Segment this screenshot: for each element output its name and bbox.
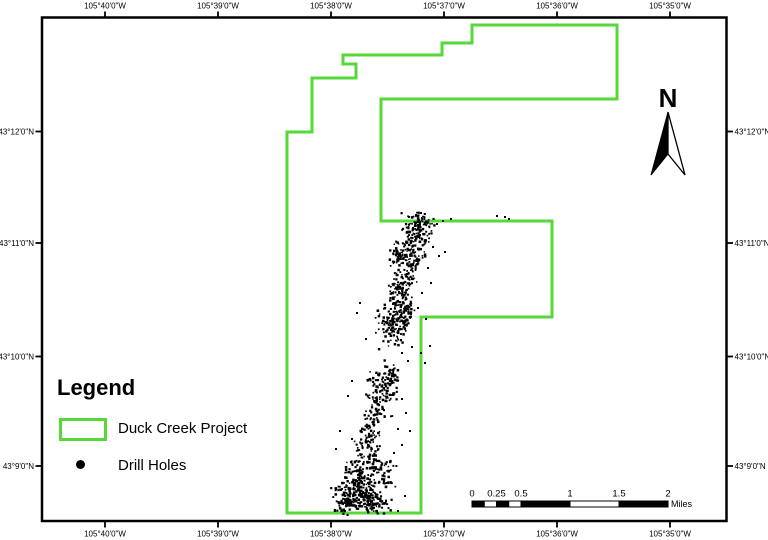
drill-hole-dot [358, 494, 360, 496]
drill-hole-dot [415, 267, 417, 269]
drill-hole-dot [351, 438, 353, 440]
drill-hole-dot [361, 439, 362, 440]
drill-hole-dot [360, 501, 362, 503]
drill-hole-dot [404, 254, 406, 256]
drill-hole-dot [384, 379, 386, 381]
drill-hole-dot [342, 503, 344, 505]
drill-hole-dot [415, 214, 417, 216]
drill-hole-dot [364, 477, 366, 479]
drill-hole-dot [391, 318, 393, 320]
drill-hole-dot [372, 381, 374, 383]
longitude-label-top: 105°36'0"W [536, 2, 578, 11]
drill-hole-dot [504, 216, 506, 218]
drill-hole-dot [389, 461, 391, 463]
drill-hole-dot [381, 478, 383, 480]
drill-hole-dot [417, 224, 419, 226]
drill-hole-dot [406, 270, 408, 272]
drill-hole-dot [433, 218, 435, 220]
drill-hole-dot [399, 328, 401, 330]
drill-hole-dot [392, 298, 395, 301]
scale-tick-label: 0.25 [487, 489, 506, 500]
drill-hole-dot [401, 444, 403, 446]
drill-hole-dot [398, 291, 400, 293]
drill-hole-dot [387, 317, 389, 319]
drill-hole-dot [368, 397, 370, 399]
drill-hole-dot [356, 450, 358, 452]
drill-hole-dot [390, 324, 392, 326]
drill-hole-dot [395, 286, 398, 289]
longitude-label-top: 105°38'0"W [310, 2, 352, 11]
drill-hole-dot [376, 400, 378, 402]
drill-hole-dot [372, 432, 374, 434]
drill-hole-dot [378, 460, 380, 462]
drill-hole-dot [371, 485, 372, 486]
drill-hole-dot [369, 486, 371, 488]
drill-hole-dot [386, 503, 388, 505]
drill-hole-dot [351, 463, 353, 465]
drill-hole-dot [395, 323, 398, 326]
drill-hole-dot [365, 418, 367, 420]
drill-hole-dot [386, 482, 388, 484]
drill-hole-dot [388, 345, 389, 346]
drill-hole-dot [417, 236, 419, 238]
drill-hole-dot [356, 490, 358, 492]
drill-hole-dot [367, 474, 369, 476]
drill-hole-dot [399, 254, 402, 257]
latitude-label-left: 43°12'0"N [0, 127, 34, 136]
longitude-label-bottom: 105°37'0"W [423, 530, 465, 539]
drill-hole-dot [418, 212, 420, 214]
drill-hole-dot [354, 471, 356, 473]
drill-hole-dot [365, 338, 367, 340]
drill-hole-dot [394, 296, 395, 297]
drill-hole-dot [406, 276, 408, 278]
drill-hole-dot [424, 213, 426, 215]
drill-hole-dot [377, 512, 379, 514]
drill-hole-dot [365, 435, 367, 437]
drill-hole-dot [405, 412, 407, 414]
drill-hole-dot [396, 252, 398, 254]
drill-hole-dot [428, 219, 430, 221]
drill-hole-dot [383, 388, 385, 390]
drill-hole-dot [335, 493, 338, 496]
drill-hole-dot [393, 452, 395, 454]
drill-hole-dot [360, 443, 362, 445]
drill-hole-dot [380, 413, 382, 415]
drill-hole-dot [367, 447, 369, 449]
drill-hole-dot [422, 233, 425, 236]
drill-hole-dot [393, 311, 395, 313]
drill-hole-dot [384, 475, 386, 477]
drill-hole-dot [378, 373, 380, 375]
drill-hole-dot [406, 289, 408, 291]
drill-hole-dot [343, 492, 345, 494]
drill-hole-dot [383, 395, 385, 397]
drill-hole-dot [369, 454, 371, 456]
drill-hole-dot [395, 340, 397, 342]
drill-hole-dot [372, 385, 374, 387]
drill-hole-dot [402, 287, 404, 289]
drill-hole-dot [394, 307, 396, 309]
drill-hole-dot [408, 288, 410, 290]
drill-hole-dot [422, 255, 424, 257]
drill-hole-dot [412, 275, 414, 277]
drill-hole-dot [368, 492, 370, 494]
drill-hole-dot [375, 510, 378, 513]
drill-hole-dot [370, 481, 372, 483]
drill-hole-dot [397, 300, 400, 303]
drill-hole-dot [368, 436, 371, 439]
drill-hole-dot [389, 258, 392, 261]
drill-hole-dot [366, 437, 368, 439]
drill-hole-dot [438, 255, 440, 257]
drill-hole-dot [374, 437, 376, 439]
drill-hole-dot [355, 466, 357, 468]
drill-hole-dot [369, 496, 371, 498]
drill-hole-dot [390, 509, 392, 511]
drill-hole-dot [409, 279, 411, 281]
drill-hole-dot [406, 260, 408, 262]
drill-hole-dot [393, 278, 395, 280]
drill-hole-dot [357, 455, 359, 457]
drill-hole-dot [408, 244, 410, 246]
drill-hole-dot [427, 221, 429, 223]
drill-hole-dot [396, 258, 398, 260]
drill-hole-dot [364, 499, 366, 501]
drill-hole-dot [399, 258, 402, 261]
drill-hole-dot [374, 479, 376, 481]
drill-hole-dot [388, 383, 390, 385]
drill-hole-dot [392, 315, 394, 317]
drill-hole-dot [407, 282, 410, 285]
drill-hole-dot [389, 249, 391, 251]
drill-hole-dot [374, 469, 375, 470]
drill-hole-dot [369, 507, 371, 509]
drill-hole-dot [415, 228, 417, 230]
drill-hole-dot [395, 486, 397, 488]
drill-hole-dot [399, 326, 401, 328]
drill-hole-dot [369, 378, 372, 381]
drill-hole-dot [404, 243, 406, 245]
drill-hole-dot [417, 248, 420, 251]
drill-hole-dot [414, 244, 416, 246]
drill-hole-dot [369, 394, 371, 396]
drill-hole-dot [401, 212, 403, 214]
drill-hole-dot [389, 394, 391, 396]
drill-hole-dot [384, 389, 386, 391]
drill-hole-dot [400, 249, 402, 251]
drill-hole-dot [336, 500, 338, 502]
drill-hole-dot [378, 328, 380, 330]
drill-hole-dot [346, 472, 348, 474]
drill-hole-dot [413, 278, 415, 280]
drill-hole-dot [433, 224, 435, 226]
drill-hole-dot [392, 284, 394, 286]
drill-hole-dot [417, 226, 419, 228]
drill-hole-dot [400, 305, 402, 307]
drill-hole-dot [389, 378, 392, 381]
drill-hole-dot [372, 396, 374, 398]
drill-hole-dot [397, 339, 399, 341]
drill-hole-dot [388, 373, 391, 376]
longitude-label-top: 105°39'0"W [197, 2, 239, 11]
drill-hole-dot [404, 495, 406, 497]
drill-hole-dot [343, 482, 345, 484]
drill-hole-dot [383, 324, 385, 326]
drill-hole-dot [410, 308, 413, 311]
drill-hole-dot [332, 496, 334, 498]
drill-hole-dot [407, 313, 409, 315]
drill-hole-dot [381, 507, 383, 509]
drill-hole-dot [377, 450, 379, 452]
drill-hole-dot [408, 228, 410, 230]
drill-hole-dot [371, 434, 373, 436]
drill-hole-dot [375, 332, 377, 334]
drill-hole-dot [410, 242, 412, 244]
drill-hole-dot [401, 274, 403, 276]
drill-hole-dot [357, 508, 359, 510]
drill-hole-dot [405, 292, 407, 294]
drill-hole-dot [378, 315, 381, 318]
drill-hole-dot [388, 327, 390, 329]
drill-hole-dot [361, 496, 363, 498]
drill-hole-dot [418, 255, 420, 256]
drill-hole-dot [341, 500, 343, 502]
drill-hole-dot [352, 471, 354, 473]
drill-hole-dot [410, 270, 411, 271]
drill-hole-dot [372, 398, 374, 400]
drill-hole-dot [392, 371, 394, 373]
drill-hole-dot [402, 277, 404, 279]
drill-hole-dot [429, 345, 431, 347]
drill-hole-dot [368, 433, 370, 435]
drill-hole-dot [397, 269, 399, 271]
drill-hole-dot [407, 305, 409, 307]
drill-hole-dot [359, 475, 361, 477]
drill-hole-dot [399, 271, 401, 273]
drill-hole-dot [376, 413, 378, 415]
drill-hole-dot [411, 297, 413, 299]
scale-bar-unit-label: Miles [671, 499, 692, 509]
drill-hole-dot [408, 216, 410, 218]
drill-hole-dot [404, 292, 405, 293]
drill-hole-dot [388, 476, 390, 478]
drill-hole-dot [378, 472, 380, 474]
drill-hole-dot [374, 414, 376, 416]
drill-hole-dot [374, 401, 376, 403]
drill-hole-dot [390, 265, 392, 267]
drill-hole-dot [409, 231, 412, 234]
drill-hole-dot [402, 228, 404, 230]
drill-hole-dot [369, 410, 371, 412]
drill-hole-dot [372, 377, 375, 380]
drill-hole-dot [424, 253, 427, 256]
drill-hole-dot [381, 385, 383, 387]
drill-hole-dot [421, 292, 423, 294]
drill-hole-dot [403, 303, 404, 304]
drill-hole-dot [394, 343, 397, 346]
drill-hole-dot [338, 501, 340, 503]
drill-hole-dot [364, 506, 366, 508]
drill-hole-dot [403, 308, 405, 310]
drill-hole-dot [389, 369, 391, 371]
drill-hole-dot [366, 442, 368, 444]
drill-hole-dot [368, 415, 370, 417]
drill-hole-dot [377, 386, 379, 388]
drill-hole-dot [366, 484, 368, 486]
drill-hole-dot [388, 333, 390, 335]
drill-hole-dot [387, 340, 390, 343]
drill-hole-dot [424, 362, 426, 364]
drill-hole-dot [370, 430, 373, 433]
drill-hole-dot [372, 497, 374, 499]
drill-hole-dot [395, 465, 397, 467]
drill-hole-dot [356, 497, 358, 499]
drill-hole-dot [399, 311, 401, 313]
drill-hole-dot [355, 506, 357, 508]
drill-hole-dot [376, 472, 378, 474]
drill-hole-dot [388, 470, 391, 473]
drill-hole-dot [397, 294, 399, 296]
drill-hole-dot [424, 251, 425, 252]
drill-hole-dot [397, 338, 399, 340]
drill-hole-dot [359, 461, 360, 462]
drill-hole-dot [390, 334, 393, 337]
drill-hole-dot [378, 482, 380, 484]
drill-hole-dot [396, 312, 398, 314]
drill-hole-dot [381, 464, 383, 466]
drill-hole-dot [395, 311, 396, 312]
drill-hole-dot [365, 495, 368, 498]
drill-hole-dot [379, 313, 380, 314]
drill-hole-dot [387, 378, 390, 381]
drill-hole-dot [409, 254, 412, 257]
drill-hole-dot [378, 404, 381, 407]
drill-hole-dot [436, 223, 438, 225]
drill-hole-dot [392, 303, 394, 305]
drill-hole-dot [390, 398, 392, 400]
drill-hole-dot [383, 331, 385, 333]
drill-hole-dot [418, 219, 420, 221]
drill-hole-dot [335, 489, 337, 491]
drill-hole-dot [383, 483, 385, 485]
drill-hole-dot [385, 486, 388, 489]
drill-hole-dot [374, 492, 376, 494]
drill-hole-dot [366, 461, 369, 464]
drill-hole-dot [360, 487, 362, 489]
drill-hole-dot [408, 226, 410, 228]
drill-hole-dot [401, 328, 403, 330]
drill-hole-dot [395, 291, 397, 293]
drill-hole-dot [402, 262, 404, 264]
drill-hole-dot [359, 302, 361, 304]
drill-hole-dot [416, 233, 418, 235]
drill-hole-dot [424, 240, 426, 242]
drill-hole-dot [397, 281, 399, 283]
drill-hole-dot [386, 329, 388, 331]
drill-hole-dot [508, 218, 510, 220]
drill-hole-dot [362, 499, 364, 501]
drill-hole-dot [393, 334, 395, 336]
drill-hole-dot [344, 495, 346, 497]
drill-hole-dot [401, 295, 403, 297]
drill-hole-dot [401, 252, 403, 254]
drill-hole-dot [359, 506, 361, 508]
drill-hole-dot [379, 390, 381, 392]
drill-hole-dot [362, 468, 364, 470]
legend-title: Legend [57, 375, 135, 401]
drill-hole-dot [419, 231, 421, 233]
drill-hole-dot [365, 410, 367, 412]
drill-hole-dot [359, 468, 361, 470]
drill-hole-dot [394, 304, 397, 307]
drill-hole-dot [415, 265, 417, 267]
drill-hole-dot [346, 462, 347, 463]
drill-hole-dot [396, 319, 399, 322]
drill-hole-dot [406, 256, 408, 258]
drill-hole-dot [386, 392, 388, 394]
drill-hole-dot [395, 302, 397, 304]
drill-hole-dot [393, 364, 395, 366]
drill-hole-dot [357, 487, 360, 490]
drill-hole-dot [369, 461, 371, 463]
drill-hole-dot [336, 510, 338, 512]
drill-hole-dot [353, 487, 355, 489]
drill-hole-dot [404, 327, 407, 330]
drill-hole-dot [411, 346, 413, 348]
drill-hole-dot [407, 360, 409, 362]
longitude-label-bottom: 105°36'0"W [536, 530, 578, 539]
drill-hole-dot [351, 504, 353, 506]
drill-hole-dot [406, 241, 408, 243]
legend-item-label-project: Duck Creek Project [118, 420, 247, 437]
drill-hole-dot [345, 503, 348, 506]
drill-hole-dot [412, 255, 414, 257]
drill-hole-dot [403, 246, 405, 248]
drill-hole-dot [429, 227, 430, 228]
drill-hole-dot [379, 445, 381, 447]
drill-hole-dot [383, 480, 385, 482]
drill-hole-dot [401, 398, 403, 400]
drill-hole-dot [420, 248, 423, 251]
drill-hole-dot [363, 456, 365, 458]
drill-hole-dot [373, 510, 375, 512]
drill-hole-dot [356, 470, 358, 472]
drill-hole-dot [406, 298, 408, 300]
drill-hole-dot [396, 387, 398, 389]
drill-hole-dot [379, 396, 381, 398]
drill-hole-dot [380, 495, 382, 497]
drill-hole-dot [395, 254, 398, 256]
drill-hole-dot [417, 215, 419, 217]
drill-hole-dot [384, 304, 386, 306]
drill-hole-dot [383, 373, 385, 375]
drill-hole-dot [397, 344, 400, 347]
drill-hole-dot [389, 297, 391, 299]
drill-hole-dot [409, 258, 411, 260]
drill-hole-dot [406, 227, 408, 229]
drill-hole-dot [405, 223, 407, 225]
drill-hole-dot [372, 495, 374, 497]
drill-hole-dot [410, 265, 413, 268]
drill-hole-dot [403, 269, 405, 271]
drill-hole-dot [373, 461, 375, 463]
drill-hole-dot [351, 460, 352, 461]
drill-hole-dot [373, 425, 375, 427]
drill-hole-dot [369, 441, 371, 443]
drill-hole-dot [442, 220, 444, 222]
drill-hole-dot [391, 415, 393, 417]
